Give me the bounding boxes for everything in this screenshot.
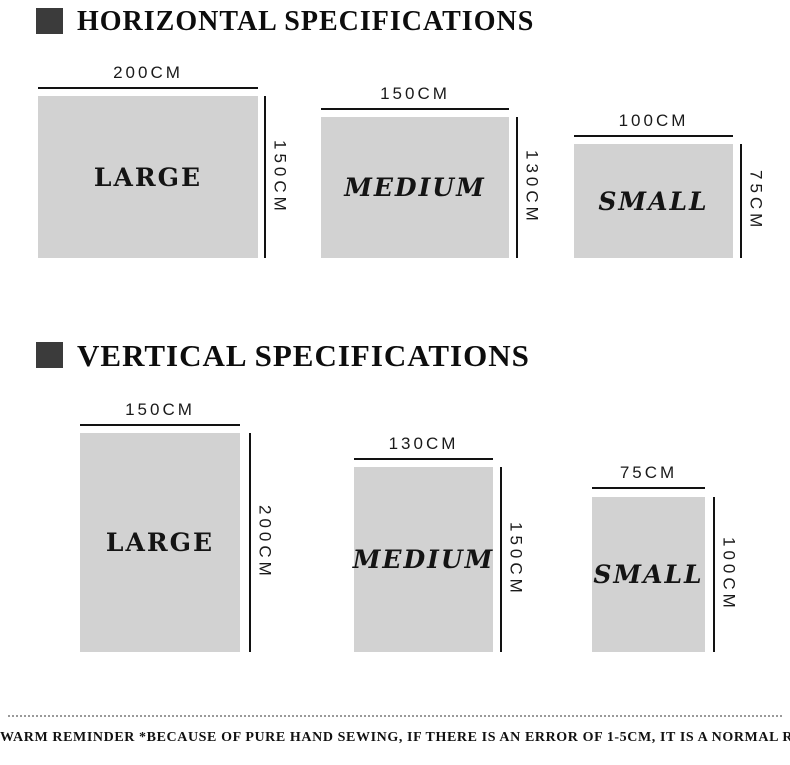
height-dimension-label: 100CM: [718, 497, 740, 652]
width-dimension-label: 150CM: [321, 85, 509, 102]
height-dimension-label: 75CM: [745, 144, 767, 258]
height-dimension-label: 130CM: [521, 117, 543, 258]
width-dimension-line: [321, 108, 509, 110]
height-dimension-line: [264, 96, 266, 258]
size-rectangle-medium: MEDIUM: [354, 467, 493, 652]
width-dimension-line: [354, 458, 493, 460]
size-name-label: LARGE: [106, 530, 214, 555]
size-name-label: SMALL: [593, 562, 703, 587]
height-dimension-label: 200CM: [254, 433, 276, 652]
size-rectangle-large: LARGE: [80, 433, 240, 652]
width-dimension-label: 75CM: [592, 464, 705, 481]
size-name-label: LARGE: [94, 165, 202, 190]
width-dimension-line: [80, 424, 240, 426]
size-rectangle-small: SMALL: [592, 497, 705, 652]
height-dimension-line: [740, 144, 742, 258]
section-header-vertical: VERTICAL SPECIFICATIONS: [36, 338, 530, 371]
height-dimension-line: [516, 117, 518, 258]
section-marker-square: [36, 8, 63, 34]
size-name-label: MEDIUM: [344, 175, 486, 200]
height-dimension-line: [249, 433, 251, 652]
section-title: VERTICAL SPECIFICATIONS: [77, 338, 530, 371]
warm-reminder-text: WARM REMINDER *BECAUSE OF PURE HAND SEWI…: [0, 730, 790, 746]
section-title: HORIZONTAL SPECIFICATIONS: [77, 6, 534, 36]
height-dimension-line: [500, 467, 502, 652]
width-dimension-label: 130CM: [354, 435, 493, 452]
size-rectangle-small: SMALL: [574, 144, 733, 258]
width-dimension-label: 100CM: [574, 112, 733, 129]
size-rectangle-medium: MEDIUM: [321, 117, 509, 258]
height-dimension-label: 150CM: [505, 467, 527, 652]
size-name-label: SMALL: [598, 189, 708, 214]
size-rectangle-large: LARGE: [38, 96, 258, 258]
width-dimension-line: [592, 487, 705, 489]
dotted-divider-line: [8, 715, 782, 717]
size-name-label: MEDIUM: [353, 547, 495, 572]
width-dimension-line: [574, 135, 733, 137]
section-marker-square: [36, 342, 63, 368]
width-dimension-line: [38, 87, 258, 89]
width-dimension-label: 150CM: [80, 401, 240, 418]
spec-sheet: HORIZONTAL SPECIFICATIONS 200CM LARGE 15…: [0, 0, 790, 765]
height-dimension-line: [713, 497, 715, 652]
width-dimension-label: 200CM: [38, 64, 258, 81]
section-header-horizontal: HORIZONTAL SPECIFICATIONS: [36, 6, 534, 36]
height-dimension-label: 150CM: [269, 96, 291, 258]
